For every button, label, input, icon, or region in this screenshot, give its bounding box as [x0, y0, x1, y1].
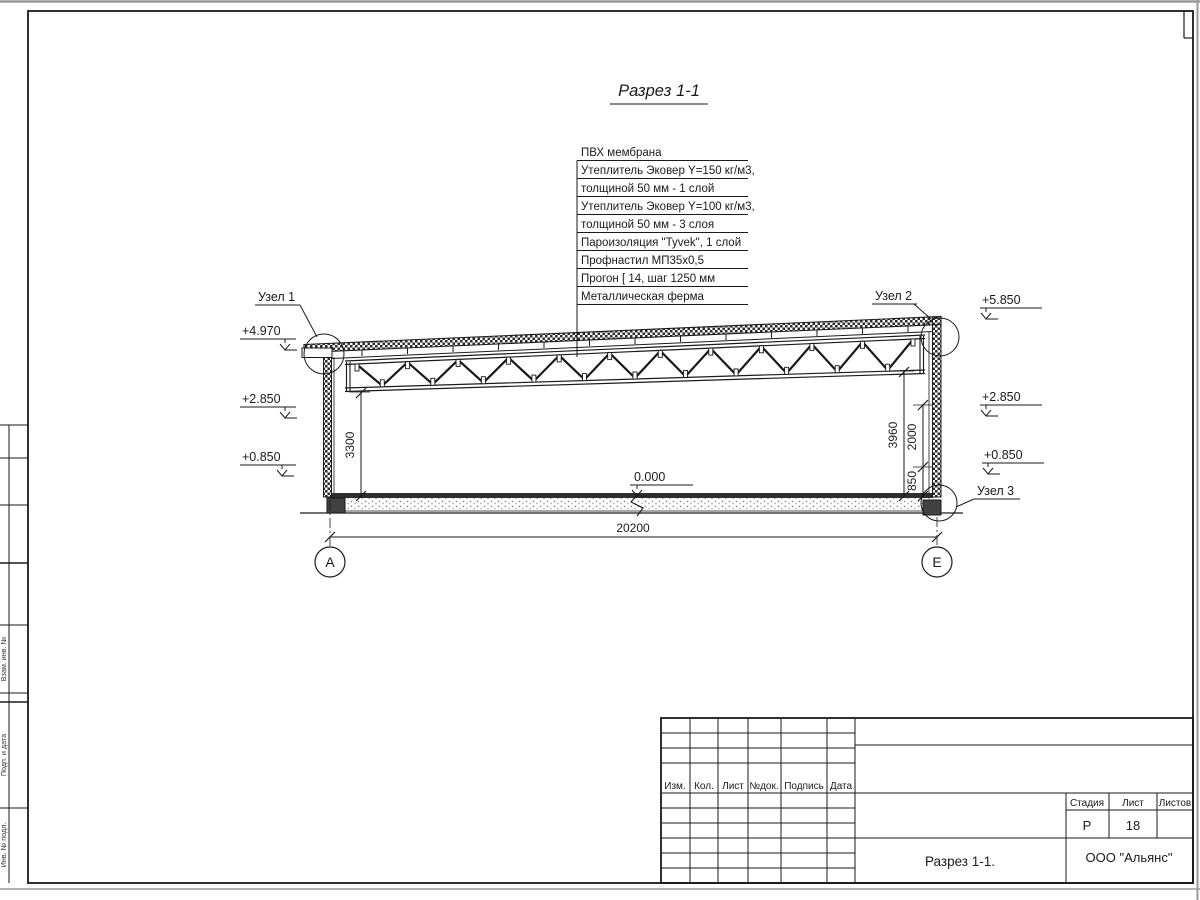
title-block-headers: Изм. Кол. Лист №док. Подпись Дата Стадия…: [664, 781, 1191, 809]
dim-span: 20200: [325, 521, 942, 542]
drawing-name: Разрез 1-1.: [925, 854, 995, 869]
margin-label-vzam: Взам. инв. №: [0, 636, 8, 681]
dim-value: 850: [905, 471, 919, 491]
node2-label: Узел 2: [875, 289, 912, 303]
dimensions: 3300 3960 2000 850 20200: [325, 367, 942, 542]
cad-canvas: Взам. инв. № Подп. и дата Инв. № подл.: [0, 0, 1200, 900]
view-title-text: Разрез 1-1: [618, 82, 700, 100]
stage-value: Р: [1083, 818, 1092, 833]
callout-item: ПВХ мембрана: [581, 147, 662, 159]
elevation-left-top: +4.970: [240, 324, 297, 350]
dim-value: 3960: [886, 421, 900, 448]
elevation-value: +2.850: [242, 392, 281, 406]
elevation-value: +4.970: [242, 324, 281, 338]
section-drawing: [300, 317, 963, 517]
dim-value: 3300: [343, 431, 357, 458]
wall-right: [933, 318, 942, 497]
axis-letter-left: А: [325, 554, 335, 570]
stage-label: Стадия: [1070, 798, 1104, 809]
eave-fascia: [302, 348, 332, 358]
sheet-number: 18: [1126, 818, 1140, 833]
callout-item: Профнастил МП35х0,5: [581, 255, 704, 267]
foundation-right: [923, 500, 941, 515]
elevation-value: +5.850: [982, 293, 1021, 307]
elevation-value: +2.850: [982, 390, 1021, 404]
callout-item: толщиной 50 мм - 3 слоя: [581, 219, 714, 231]
axis-letter-right: Е: [932, 554, 941, 570]
floor-slab: [300, 493, 963, 516]
view-title: Разрез 1-1: [610, 82, 708, 104]
sheet-label: Лист: [1122, 798, 1144, 809]
callout-item: Пароизоляция "Tyvek", 1 слой: [581, 237, 741, 249]
margin-label-inv: Инв. № подл.: [0, 823, 8, 868]
elevation-left-low: +0.850: [240, 450, 296, 476]
company-name: ООО "Альянс": [1086, 850, 1173, 865]
col-data: Дата: [830, 781, 853, 792]
sheets-label: Листов: [1159, 798, 1192, 809]
dim-value: 20200: [616, 521, 650, 535]
elevation-right-top: +5.850: [980, 293, 1042, 319]
title-block-values: Р 18 Разрез 1-1. ООО "Альянс": [925, 818, 1173, 869]
col-list: Лист: [722, 781, 744, 792]
callout-item: Утеплитель Эковер Y=100 кг/м3,: [581, 201, 755, 213]
grid-axes: А Е: [315, 500, 952, 577]
sheet-frame: [28, 11, 1193, 883]
dim-value: 2000: [905, 423, 919, 450]
col-ndok: №док.: [749, 781, 778, 792]
elevation-zero: 0.000: [630, 470, 693, 496]
title-block: Изм. Кол. Лист №док. Подпись Дата Стадия…: [661, 718, 1193, 883]
elevation-right-mid: +2.850: [980, 390, 1042, 416]
col-podpis: Подпись: [784, 781, 824, 792]
elevation-right-low: +0.850: [982, 448, 1044, 474]
callout-item: Утеплитель Эковер Y=150 кг/м3,: [581, 165, 755, 177]
elevation-value: +0.850: [242, 450, 281, 464]
drawing-sheet: Взам. инв. № Подп. и дата Инв. № подл.: [0, 0, 1200, 900]
col-kol: Кол.: [694, 781, 714, 792]
col-izm: Изм.: [664, 781, 685, 792]
margin-label-podp: Подп. и дата: [0, 734, 8, 776]
callout-item: Прогон [ 14, шаг 1250 мм: [581, 273, 715, 285]
elevation-value: 0.000: [634, 470, 665, 484]
callout-item: Металлическая ферма: [581, 291, 704, 303]
node1-label: Узел 1: [258, 290, 295, 304]
callout-item: толщиной 50 мм - 1 слой: [581, 183, 714, 195]
roof-package: [304, 317, 941, 353]
margin-labels: Взам. инв. № Подп. и дата Инв. № подл.: [0, 636, 8, 867]
dim-left-height: 3300: [343, 388, 370, 501]
elevation-left-mid: +2.850: [240, 392, 297, 418]
node3-label: Узел 3: [977, 484, 1014, 498]
elevation-value: +0.850: [984, 448, 1023, 462]
floor-topping: [332, 493, 933, 498]
